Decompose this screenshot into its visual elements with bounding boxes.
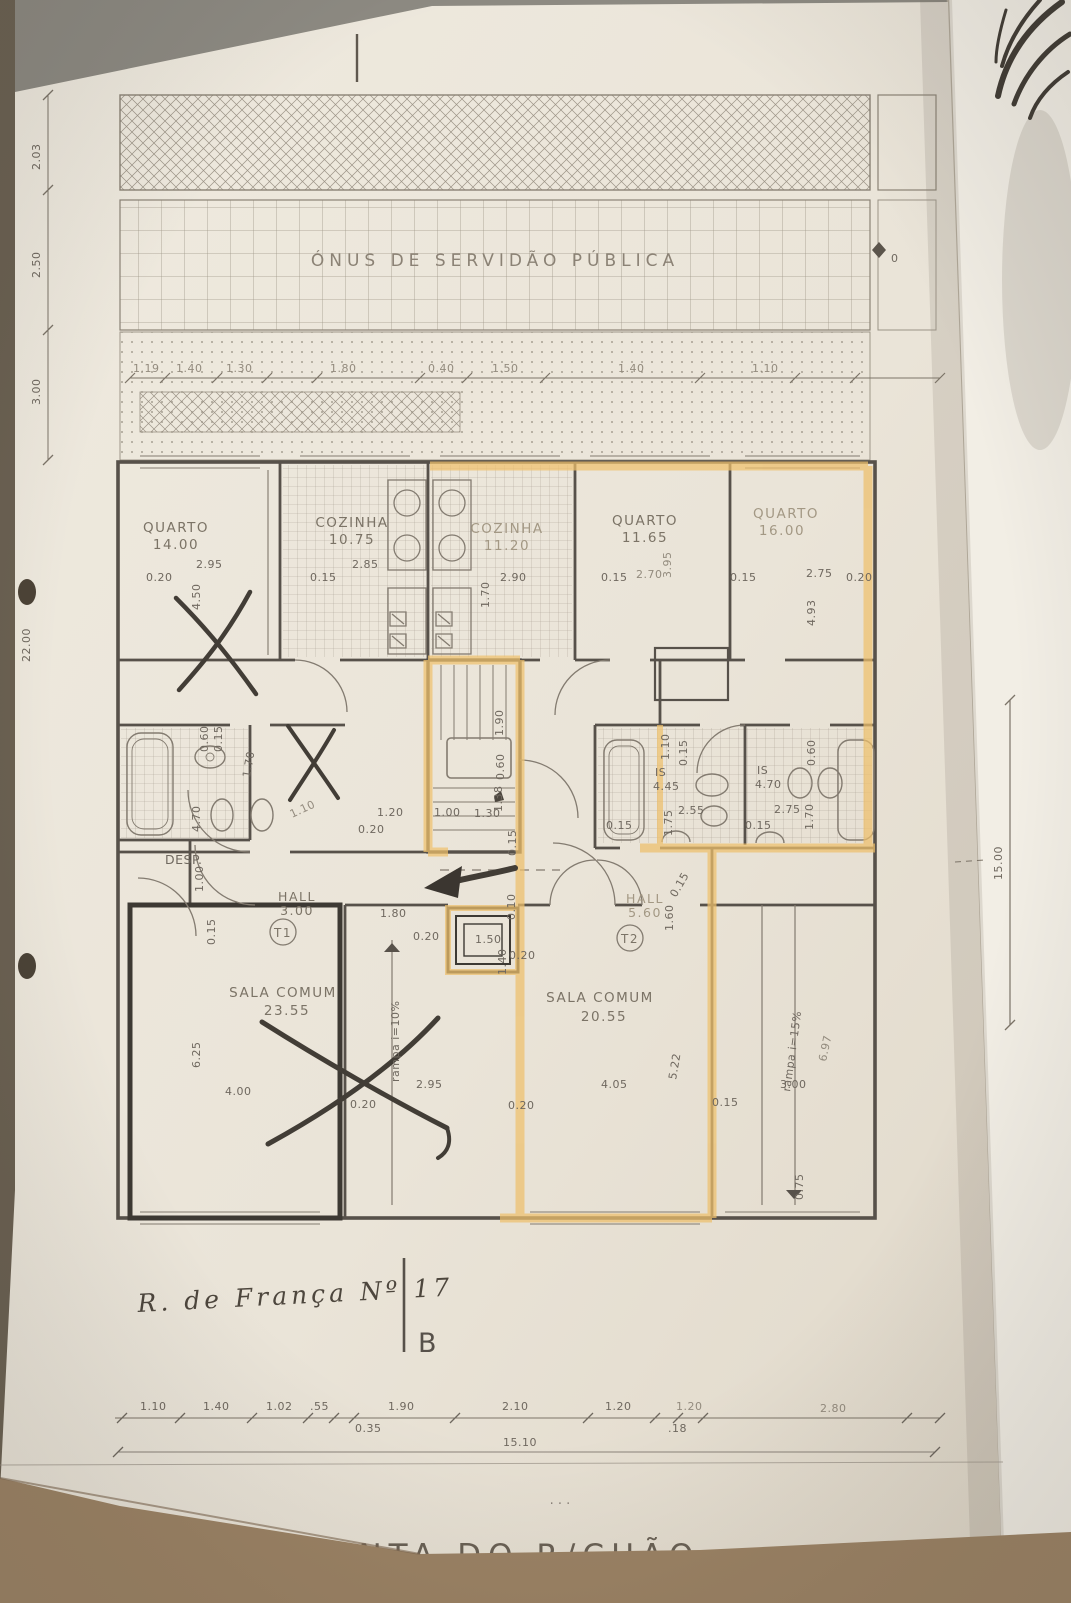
photo-vignette [0,0,1071,1603]
floor-plan-canvas: ÓNUS DE SERVIDÃO PÚBLICA 0 2.03 2.50 3.0… [0,0,1071,1603]
photographed-floor-plan: ÓNUS DE SERVIDÃO PÚBLICA 0 2.03 2.50 3.0… [0,0,1071,1603]
